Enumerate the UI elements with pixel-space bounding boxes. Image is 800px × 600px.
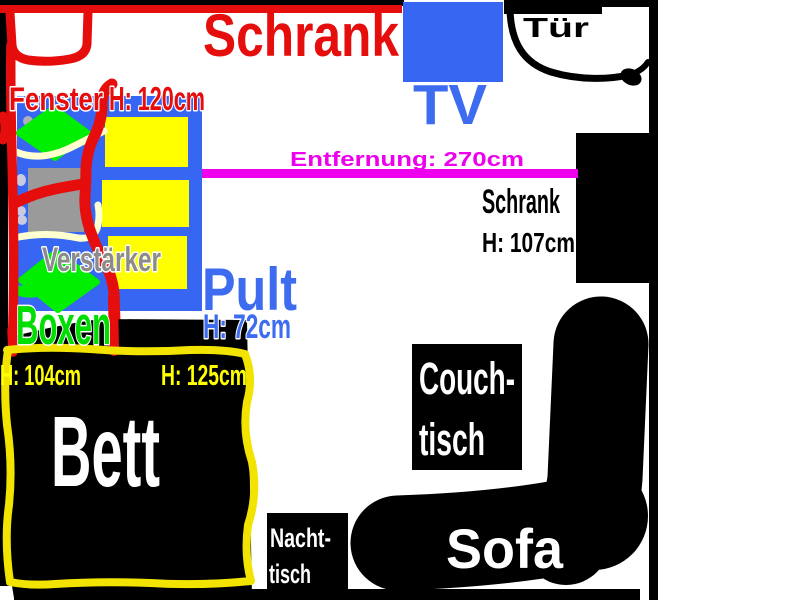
svg-text:Bett: Bett [51, 396, 160, 508]
svg-text:H: 104cm: H: 104cm [0, 360, 81, 392]
svg-text:Fenster: Fenster [9, 81, 103, 117]
svg-text:Boxen: Boxen [16, 294, 111, 356]
svg-text:H: 120cm: H: 120cm [109, 80, 205, 117]
svg-text:H: 72cm: H: 72cm [203, 308, 291, 346]
svg-text:Schrank: Schrank [482, 183, 560, 221]
svg-text:TV: TV [413, 73, 487, 137]
svg-text:H: 125cm: H: 125cm [161, 360, 247, 392]
svg-text:Verstärker: Verstärker [42, 241, 161, 279]
svg-text:tisch: tisch [419, 414, 485, 465]
svg-text:Sofa: Sofa [446, 517, 564, 580]
svg-text:tisch: tisch [269, 559, 311, 589]
svg-text:Schrank: Schrank [203, 2, 400, 69]
svg-text:Tür: Tür [523, 12, 589, 43]
svg-text:Entfernung: 270cm: Entfernung: 270cm [290, 149, 524, 171]
svg-text:Couch-: Couch- [419, 353, 515, 404]
svg-text:H: 107cm: H: 107cm [482, 227, 575, 258]
svg-text:Nacht-: Nacht- [270, 523, 331, 553]
